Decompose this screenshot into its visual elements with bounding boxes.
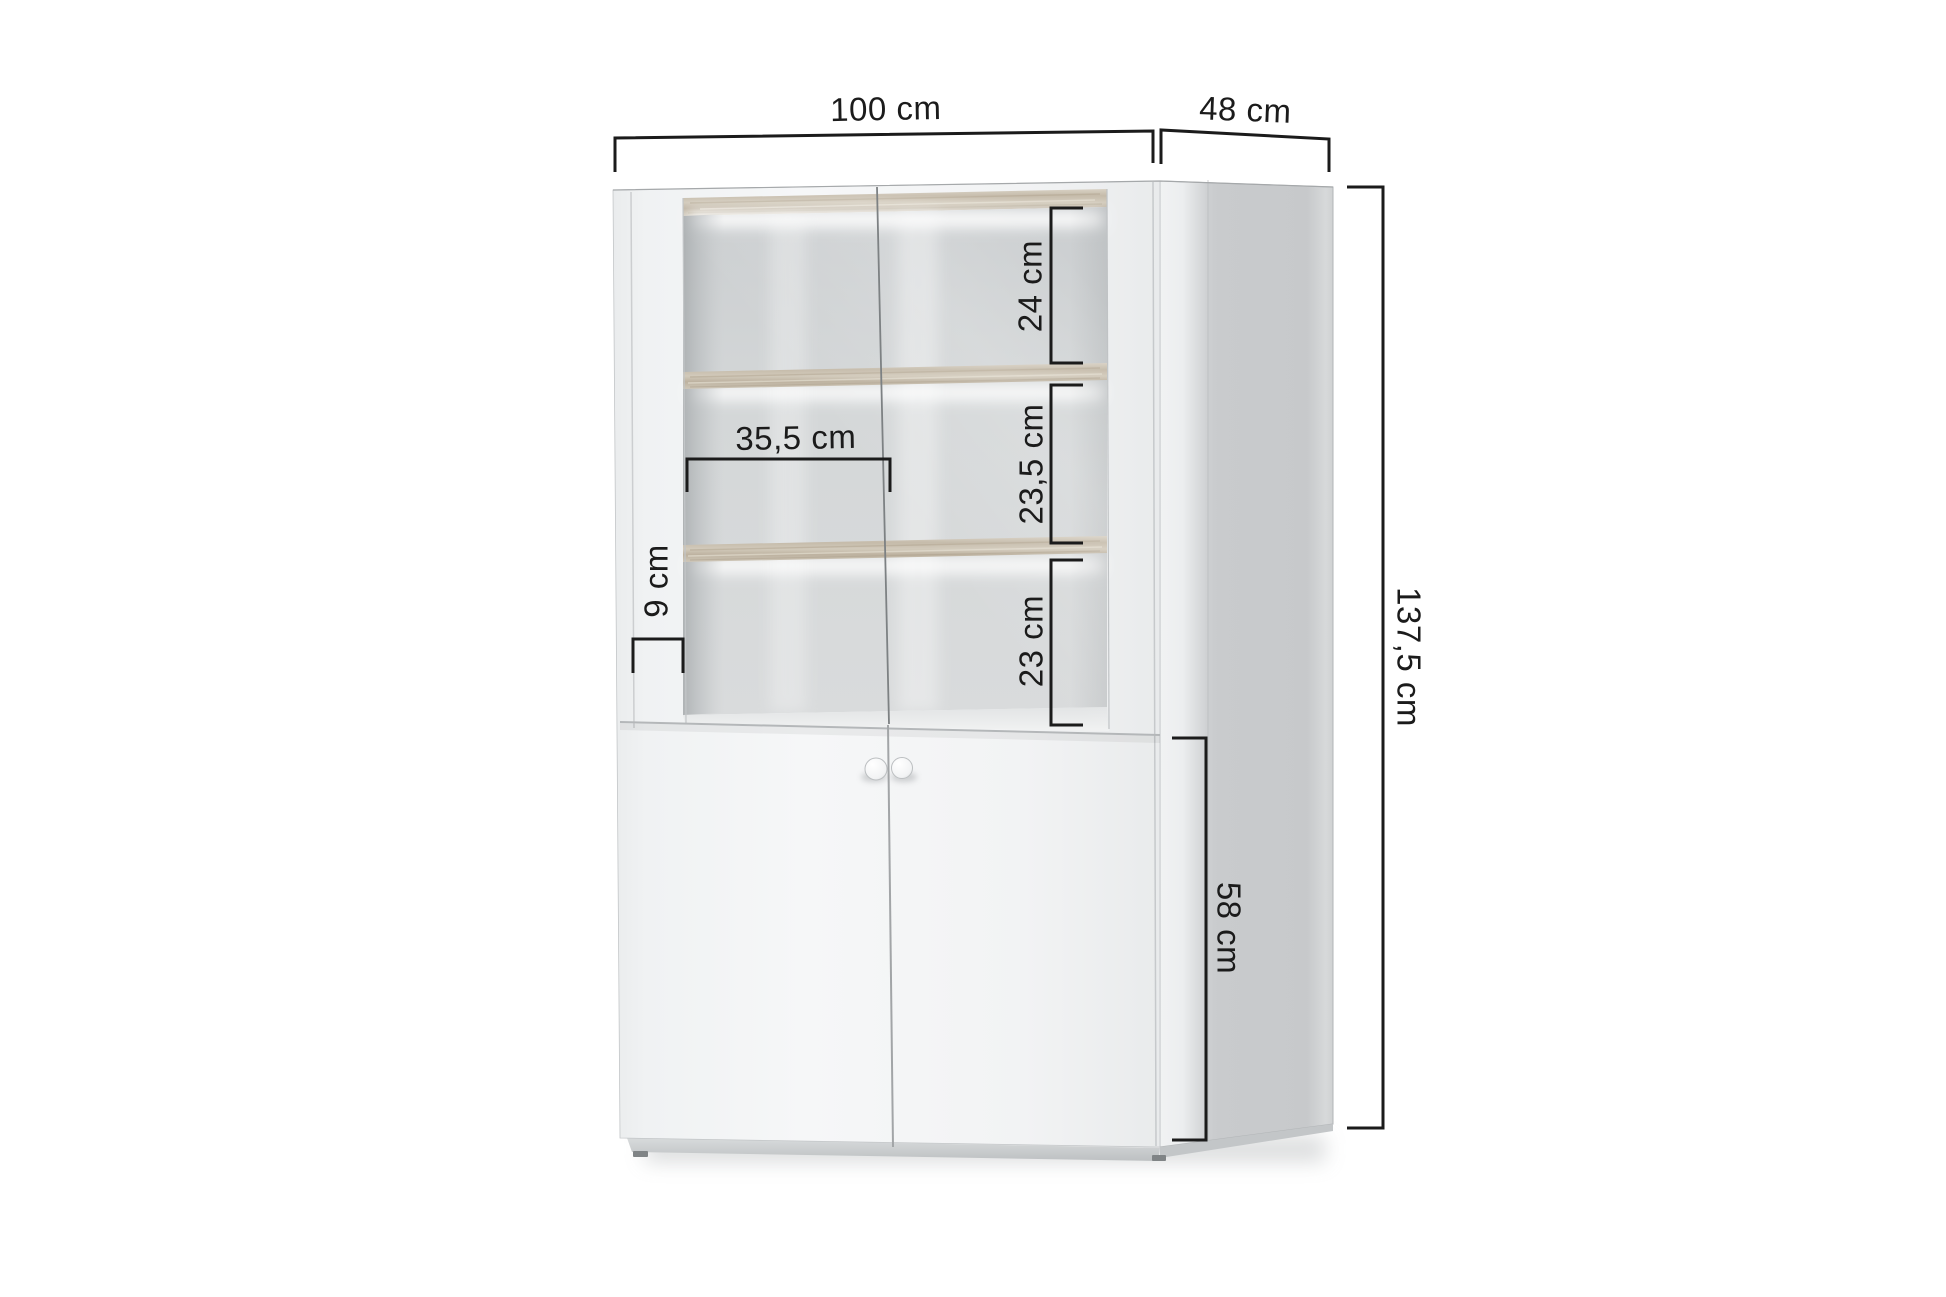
dim-compartment-top-label: 24 cm <box>1012 240 1049 332</box>
dim-width-label: 100 cm <box>830 89 942 128</box>
cabinet-foot-right <box>1152 1155 1166 1161</box>
dim-width-line <box>615 131 1153 172</box>
cabinet-dimension-drawing: 100 cm 48 cm 137,5 cm 58 cm 24 cm 23,5 c… <box>0 0 1946 1297</box>
dim-inner-width-label: 35,5 cm <box>735 418 857 457</box>
dim-compartment-bottom-label: 23 cm <box>1013 595 1050 687</box>
dim-depth-label: 48 cm <box>1199 89 1293 130</box>
door-knob-right <box>892 758 913 779</box>
furniture-dimension-diagram: 100 cm 48 cm 137,5 cm 58 cm 24 cm 23,5 c… <box>0 0 1946 1297</box>
door-knob-left <box>865 758 887 780</box>
dim-frame-width-label: 9 cm <box>638 544 675 618</box>
dim-height-line <box>1347 187 1383 1128</box>
dim-depth-line <box>1161 130 1329 172</box>
cabinet-foot-left <box>633 1151 648 1157</box>
dim-compartment-middle-label: 23,5 cm <box>1013 404 1050 525</box>
dim-base-height-label: 58 cm <box>1211 882 1248 974</box>
dim-height-label: 137,5 cm <box>1391 587 1428 727</box>
cabinet-side-panel <box>1160 181 1333 1147</box>
cabinet-graphic <box>613 180 1333 1162</box>
